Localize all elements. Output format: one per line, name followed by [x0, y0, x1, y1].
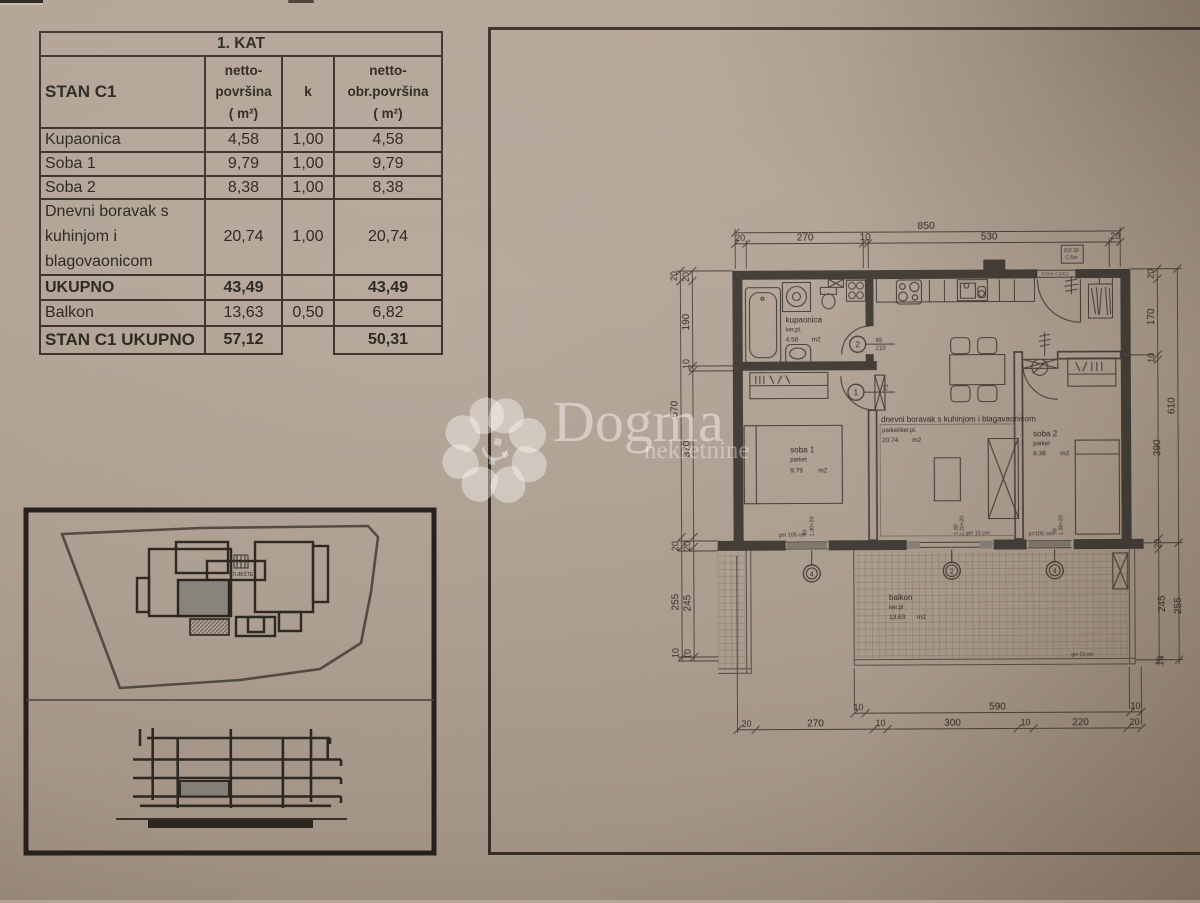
svg-text:20: 20 — [742, 719, 752, 729]
svg-text:75: 75 — [884, 384, 890, 391]
svg-text:10: 10 — [853, 702, 863, 712]
svg-text:9.79: 9.79 — [790, 467, 803, 474]
svg-text:m2: m2 — [912, 437, 921, 444]
svg-text:C-5m: C-5m — [1065, 255, 1077, 261]
svg-text:13,63: 13,63 — [889, 614, 906, 621]
svg-text:20: 20 — [670, 541, 680, 551]
svg-text:300: 300 — [944, 718, 961, 729]
svg-text:10: 10 — [1155, 656, 1165, 666]
svg-text:4.58: 4.58 — [786, 337, 799, 344]
svg-text:270: 270 — [807, 718, 824, 729]
svg-text:20: 20 — [681, 272, 691, 282]
svg-text:1.30+20: 1.30+20 — [810, 516, 816, 536]
svg-text:20: 20 — [1129, 717, 1139, 727]
svg-text:570: 570 — [669, 400, 680, 417]
svg-text:m2: m2 — [1060, 450, 1069, 457]
svg-text:20: 20 — [682, 541, 692, 551]
svg-text:10: 10 — [681, 359, 691, 369]
svg-text:4: 4 — [1053, 568, 1057, 575]
svg-text:ker.pl: ker.pl — [889, 605, 903, 611]
svg-text:530: 530 — [981, 232, 998, 243]
svg-text:4: 4 — [810, 571, 814, 578]
svg-text:20.74: 20.74 — [882, 437, 899, 444]
svg-text:220: 220 — [1072, 717, 1089, 728]
svg-text:10: 10 — [860, 232, 872, 243]
svg-text:1: 1 — [854, 388, 859, 397]
svg-text:kupaonica: kupaonica — [786, 315, 823, 324]
svg-text:balkon: balkon — [889, 593, 913, 602]
svg-text:gm 15 cm: gm 15 cm — [1071, 652, 1093, 658]
svg-text:10: 10 — [1146, 353, 1156, 363]
svg-text:20: 20 — [669, 271, 679, 281]
svg-text:210: 210 — [876, 346, 887, 352]
svg-text:20: 20 — [1146, 269, 1156, 279]
svg-text:190: 190 — [681, 313, 692, 330]
svg-text:170: 170 — [1146, 308, 1157, 325]
svg-text:245: 245 — [1157, 595, 1168, 612]
svg-text:590: 590 — [989, 702, 1006, 713]
svg-text:2: 2 — [950, 569, 954, 576]
svg-text:EI2 30: EI2 30 — [1064, 248, 1079, 254]
svg-text:255: 255 — [1173, 597, 1184, 614]
svg-text:65: 65 — [876, 338, 883, 344]
svg-text:2: 2 — [855, 340, 860, 349]
svg-text:370: 370 — [682, 440, 693, 457]
svg-text:10: 10 — [1020, 717, 1030, 727]
svg-text:10: 10 — [683, 649, 693, 659]
svg-text:90: 90 — [803, 529, 809, 535]
svg-text:390: 390 — [1152, 439, 1163, 456]
svg-text:10: 10 — [1130, 701, 1140, 711]
svg-text:gm 15 cm: gm 15 cm — [966, 531, 991, 537]
svg-text:270: 270 — [797, 232, 814, 243]
svg-text:245: 245 — [682, 594, 693, 611]
svg-text:dnevni boravak s kuhinjom i bl: dnevni boravak s kuhinjom i blagavaonico… — [881, 414, 1036, 424]
svg-text:10: 10 — [671, 648, 681, 658]
svg-text:8.38: 8.38 — [1033, 450, 1046, 457]
svg-text:10: 10 — [876, 718, 886, 728]
svg-text:20: 20 — [735, 233, 745, 243]
svg-text:610: 610 — [1166, 397, 1177, 414]
svg-text:parket: parket — [1033, 441, 1050, 447]
svg-text:ker.pl.: ker.pl. — [786, 328, 802, 334]
svg-text:p=105 cm: p=105 cm — [1029, 531, 1054, 537]
svg-text:255: 255 — [670, 593, 681, 610]
svg-text:soba 2: soba 2 — [1033, 429, 1058, 438]
svg-text:1.30+20: 1.30+20 — [1059, 515, 1065, 535]
svg-text:STAN C1/C2: STAN C1/C2 — [1041, 271, 1069, 277]
svg-text:850: 850 — [917, 220, 935, 232]
svg-text:20: 20 — [1153, 539, 1163, 549]
svg-text:soba 1: soba 1 — [790, 445, 815, 454]
svg-text:20: 20 — [1110, 231, 1120, 241]
svg-text:parket/ker.pl.: parket/ker.pl. — [882, 428, 917, 434]
svg-text:parket: parket — [790, 457, 807, 463]
svg-text:m2: m2 — [812, 336, 821, 343]
svg-text:m2: m2 — [818, 467, 827, 474]
svg-text:m2: m2 — [917, 614, 926, 621]
